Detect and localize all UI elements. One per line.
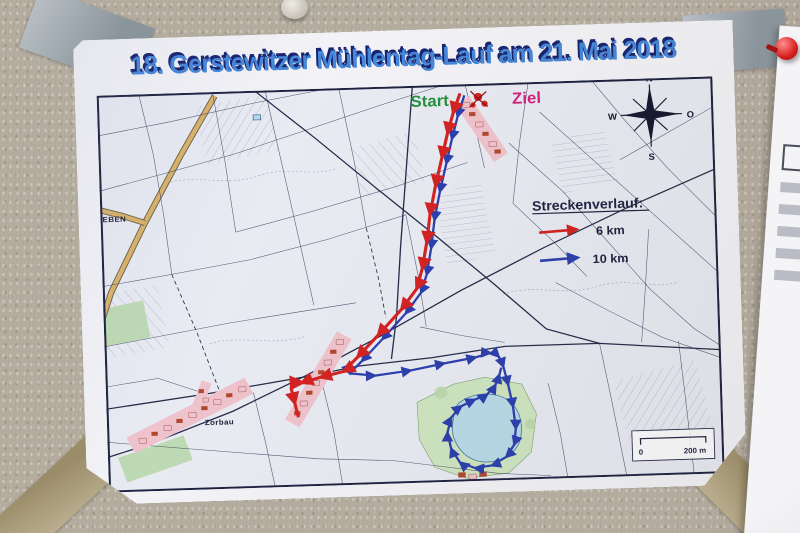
compass-west-label: W <box>608 112 618 122</box>
scale-zero-label: 0 <box>639 448 644 457</box>
poster-title: 18. Gerstewitzer Mühlentag-Lauf am 21. M… <box>80 32 727 83</box>
wall-pin <box>281 0 308 19</box>
legend-label-10km: 10 km <box>592 251 628 266</box>
red-pushpin-icon <box>775 37 798 60</box>
course-map: Start Ziel Streckenverlauf: 6 km 10 km E… <box>97 76 725 492</box>
place-label-eben: EBEN <box>102 215 126 225</box>
scale-max-label: 200 m <box>684 446 707 455</box>
start-label: Start <box>410 92 449 111</box>
note-box <box>782 144 800 172</box>
note-text-bar <box>774 270 800 283</box>
ziel-label: Ziel <box>512 89 542 107</box>
compass-south-label: S <box>648 152 655 162</box>
compass-east-label: O <box>686 109 694 119</box>
note-text-bar <box>775 248 800 261</box>
note-text-bar <box>778 204 800 217</box>
scale-bar: 0 200 m <box>632 428 715 461</box>
legend-label-6km: 6 km <box>596 223 625 238</box>
note-text-bar <box>780 182 800 195</box>
photo-scene: 18. Gerstewitzer Mühlentag-Lauf am 21. M… <box>0 0 800 533</box>
note-text-bar <box>777 226 800 239</box>
pond <box>253 115 261 120</box>
map-poster: 18. Gerstewitzer Mühlentag-Lauf am 21. M… <box>73 20 747 506</box>
place-label-zorbau: Zorbau <box>205 417 234 427</box>
pinned-note-paper <box>741 26 800 533</box>
